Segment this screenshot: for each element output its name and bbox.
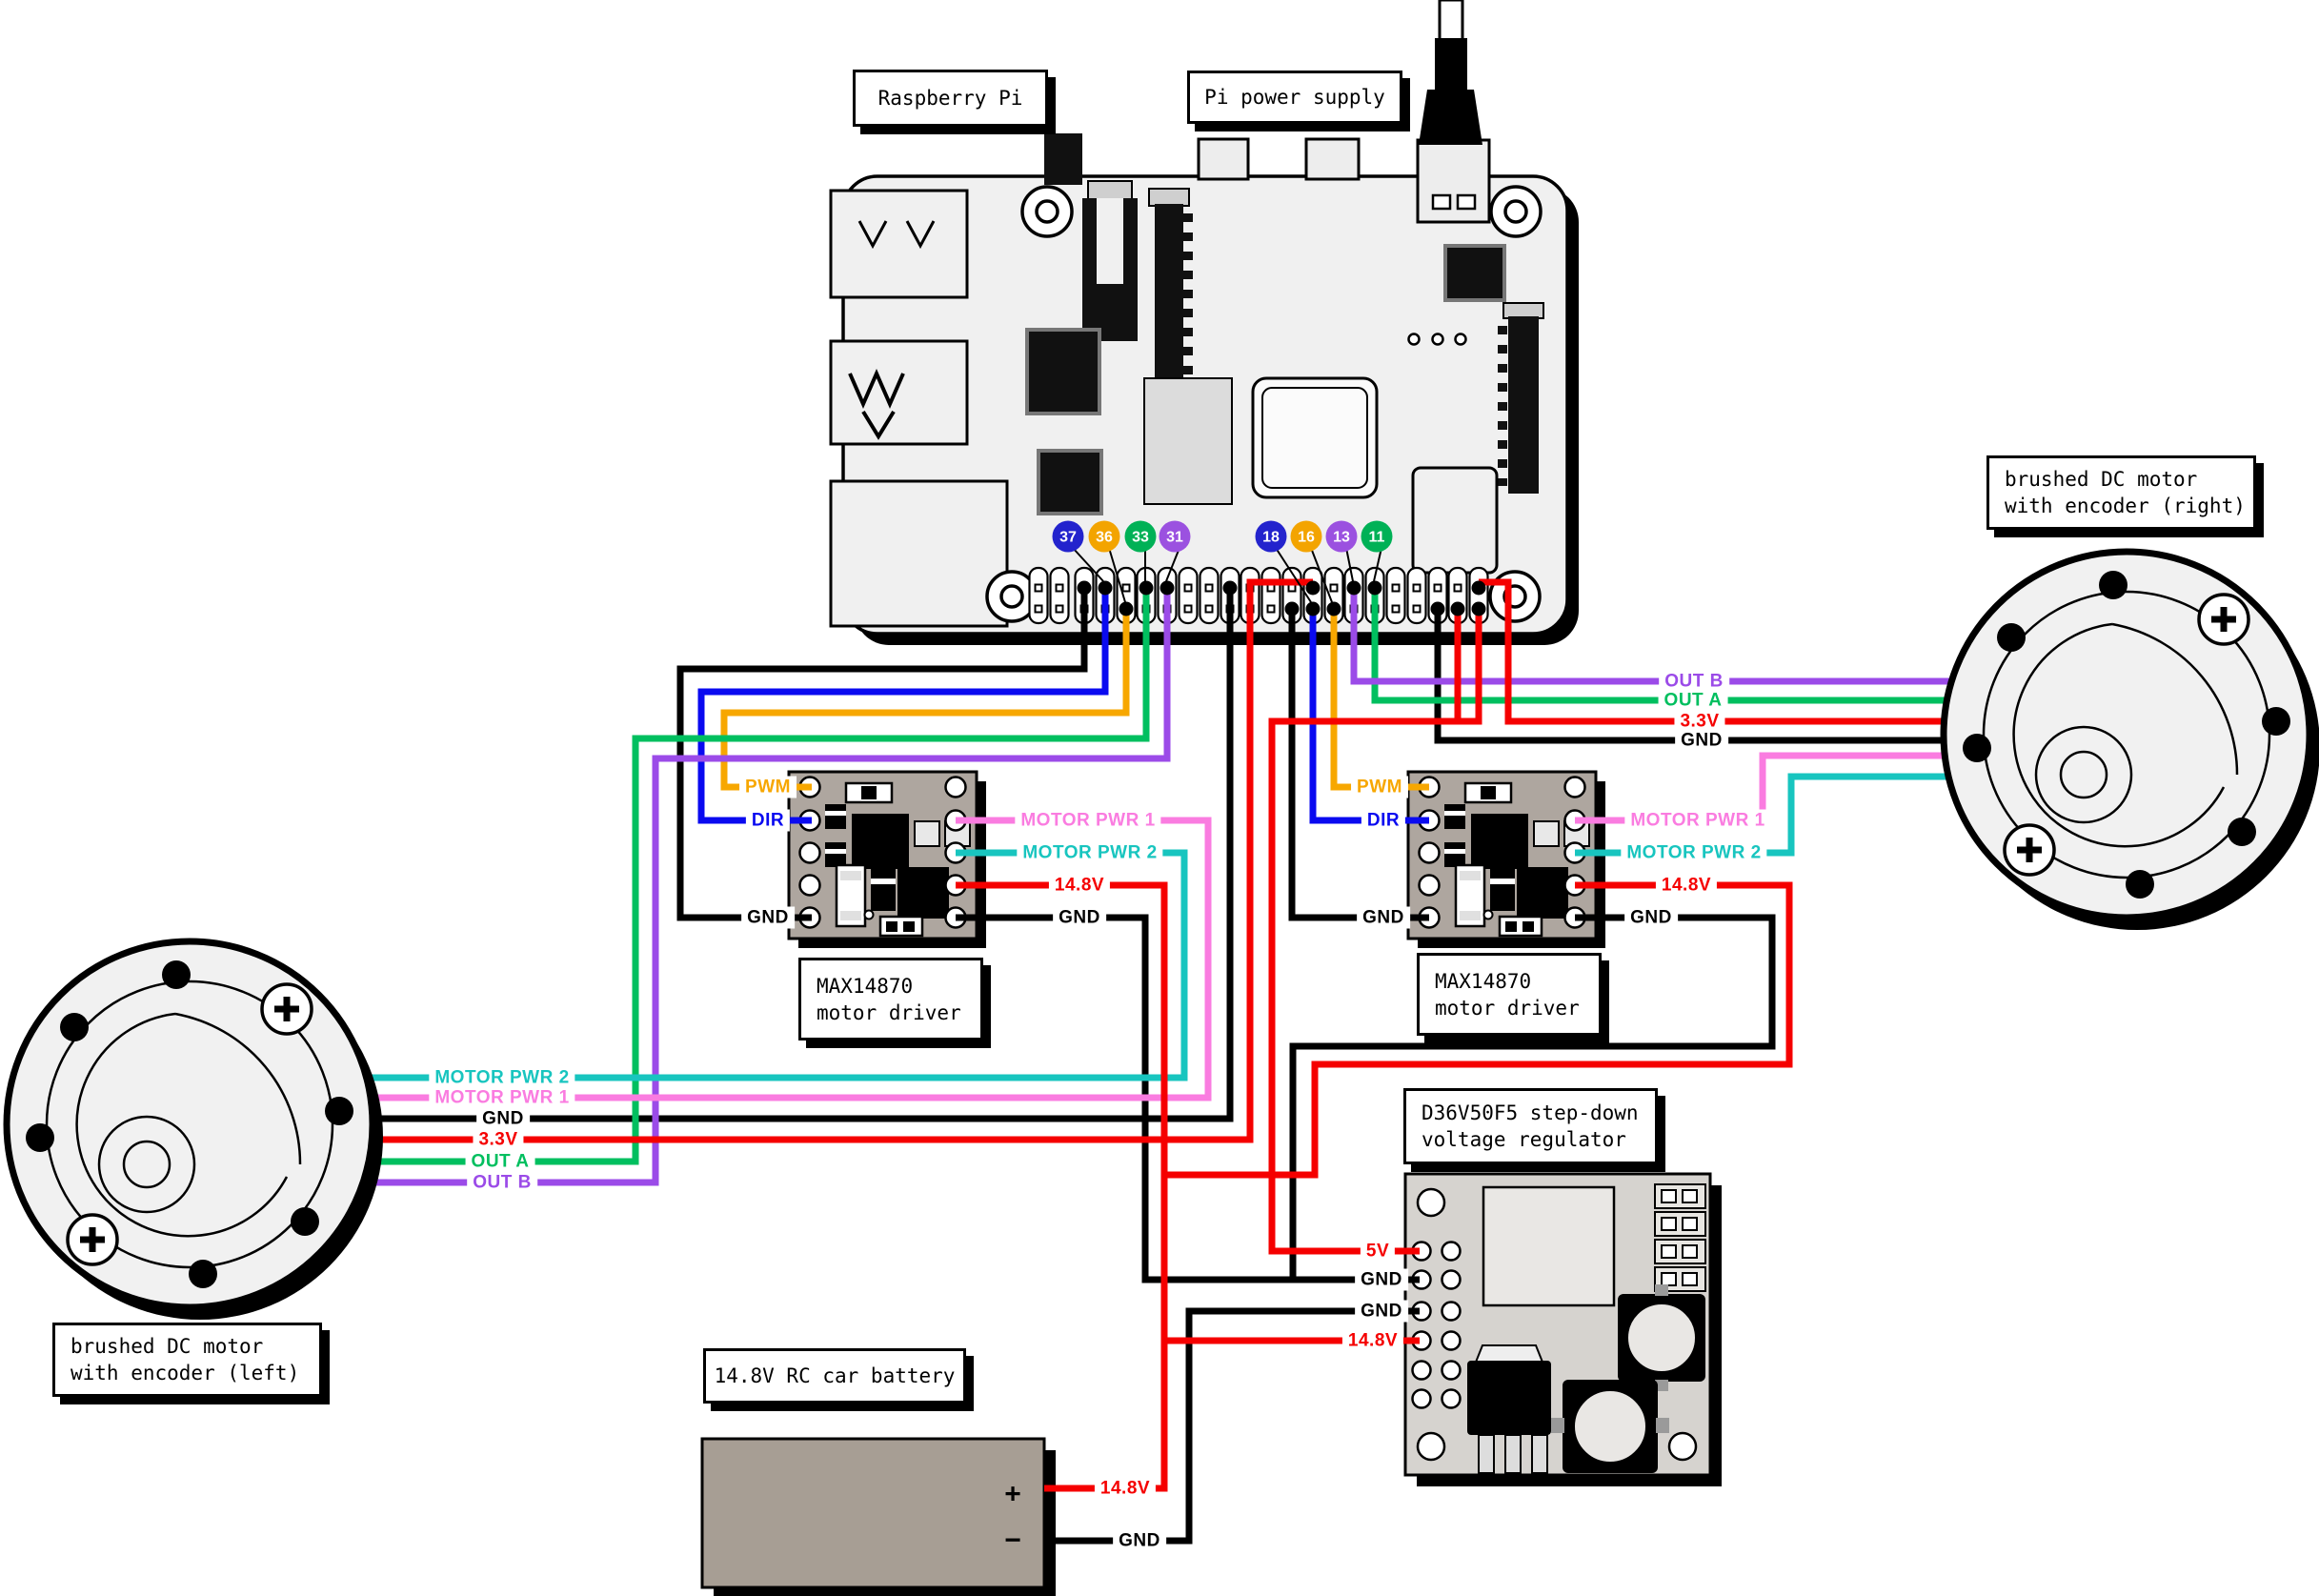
label-box-motor-left: brushed DC motorwith encoder (left) xyxy=(52,1323,322,1397)
regulator-pin xyxy=(1442,1242,1461,1261)
wiring-diagram: + − 3736333118161311 PWMDIRGNDMOTOR PWR … xyxy=(0,0,2319,1596)
driver-pin xyxy=(1420,876,1440,896)
gpio-pin-hole xyxy=(1393,606,1400,613)
gpio-pin-dot xyxy=(1431,602,1445,616)
gpio-pin-dot xyxy=(1306,602,1321,616)
left-dc-motor xyxy=(7,941,383,1320)
wire-14v8-battery-to-left-driver xyxy=(956,885,1164,1488)
chip xyxy=(1027,330,1099,414)
wire-label-14-8v: 14.8V xyxy=(1342,1330,1403,1352)
gpio-pin-hole xyxy=(1289,585,1296,592)
usb-port xyxy=(831,481,1007,626)
gpio-pin-hole xyxy=(1414,585,1421,592)
gpio-pin-hole xyxy=(1393,585,1400,592)
wire-label-motor-pwr-1: MOTOR PWR 1 xyxy=(429,1087,575,1109)
battery-plus-terminal: + xyxy=(1005,1477,1021,1508)
gpio-pin-pill xyxy=(1387,568,1405,623)
wire-label-gnd: GND xyxy=(476,1108,530,1130)
capacitor xyxy=(1551,1380,1669,1473)
wire-label-out-b: OUT B xyxy=(467,1172,537,1194)
wire-label-14-8v: 14.8V xyxy=(1095,1478,1156,1500)
driver-pin xyxy=(800,876,820,896)
gpio-pin-pill xyxy=(1180,568,1198,623)
regulator-ic xyxy=(1483,1187,1614,1305)
driver-pin xyxy=(946,778,966,798)
label-box-line: MAX14870 xyxy=(817,973,965,1000)
label-box-line: brushed DC motor xyxy=(71,1333,304,1360)
gpio-pin-dot xyxy=(1223,581,1238,596)
component xyxy=(1144,378,1232,504)
gpio-pin-hole xyxy=(1268,585,1275,592)
pin-badge-number: 37 xyxy=(1059,530,1077,546)
gpio-pin-hole xyxy=(1057,606,1063,613)
wire-label-pwm: PWM xyxy=(1351,777,1408,798)
metal-shield xyxy=(1253,378,1377,497)
transistor xyxy=(1467,1345,1551,1473)
regulator-pin xyxy=(1413,1362,1431,1380)
wire-label-gnd: GND xyxy=(741,907,795,929)
battery-minus-terminal: − xyxy=(1005,1524,1021,1555)
wire-label-out-a: OUT A xyxy=(466,1151,535,1173)
camera-connector xyxy=(1502,303,1543,494)
regulator-pin xyxy=(1413,1390,1431,1408)
component xyxy=(1413,468,1497,573)
label-box-line: MAX14870 xyxy=(1435,968,1583,995)
label-box-line: motor driver xyxy=(817,1000,965,1026)
label-box-line: brushed DC motor xyxy=(2005,466,2238,493)
gpio-pin-hole xyxy=(1206,585,1213,592)
driver-pin xyxy=(800,843,820,863)
gpio-pin-dot xyxy=(1472,581,1486,596)
gpio-pin-dot xyxy=(1306,581,1321,596)
gpio-pin-hole xyxy=(1036,606,1042,613)
wire-label-motor-pwr-1: MOTOR PWR 1 xyxy=(1015,810,1160,832)
gpio-pin-hole xyxy=(1268,606,1275,613)
label-box-line: Pi power supply xyxy=(1204,84,1385,111)
label-box-driver-left: MAX14870motor driver xyxy=(798,958,983,1040)
chip xyxy=(1445,246,1504,300)
pin-badge-number: 31 xyxy=(1166,530,1183,546)
pin-badge-number: 33 xyxy=(1132,530,1149,546)
capacitor xyxy=(1618,1284,1705,1391)
pin-badge-number: 13 xyxy=(1333,530,1350,546)
label-box-regulator: D36V50F5 step-downvoltage regulator xyxy=(1403,1088,1658,1164)
gpio-pin-hole xyxy=(1414,606,1421,613)
voltage-regulator-board xyxy=(1405,1174,1722,1486)
regulator-pin xyxy=(1442,1332,1461,1350)
wire-label-gnd: GND xyxy=(1355,1301,1408,1323)
gpio-pin-dot xyxy=(1347,581,1361,596)
wire-label-pwm: PWM xyxy=(739,777,797,798)
gpio-pin-hole xyxy=(1331,585,1338,592)
regulator-pin xyxy=(1442,1390,1461,1408)
label-box-line: motor driver xyxy=(1435,995,1583,1021)
diagram-canvas: + − 3736333118161311 xyxy=(0,0,2319,1596)
gpio-pin-dot xyxy=(1078,581,1092,596)
pin-badge-number: 36 xyxy=(1096,530,1113,546)
chip xyxy=(1039,451,1101,514)
gpio-pin-hole xyxy=(1123,585,1130,592)
battery-body: + − xyxy=(702,1439,1056,1596)
gpio-pin-dot xyxy=(1160,581,1175,596)
label-box-line: 14.8V RC car battery xyxy=(715,1363,956,1389)
gpio-pin-dot xyxy=(1285,602,1300,616)
wire-label-gnd: GND xyxy=(1113,1530,1166,1552)
regulator-pin xyxy=(1442,1271,1461,1289)
gpio-pin-hole xyxy=(1435,585,1442,592)
display-connector xyxy=(1082,181,1138,341)
wire-label-gnd: GND xyxy=(1675,730,1728,752)
wire-label-gnd: GND xyxy=(1624,907,1678,929)
gpio-pin-dot xyxy=(1099,581,1113,596)
wire-label-gnd: GND xyxy=(1355,1269,1408,1291)
pin-badge-number: 16 xyxy=(1298,530,1315,546)
gpio-pin-pill xyxy=(1051,568,1069,623)
wire-label-out-a: OUT A xyxy=(1659,690,1728,712)
pin-badge-number: 11 xyxy=(1369,530,1385,546)
gpio-pin-pill xyxy=(1200,568,1219,623)
gpio-pin-pill xyxy=(1262,568,1280,623)
wire-label-14-8v: 14.8V xyxy=(1049,875,1110,897)
raspberry-pi-board xyxy=(831,133,1579,645)
regulator-pin xyxy=(1442,1303,1461,1321)
label-box-line: with encoder (left) xyxy=(71,1360,304,1386)
label-box-raspberry-pi: Raspberry Pi xyxy=(853,70,1048,127)
gpio-pin-dot xyxy=(1451,602,1465,616)
gpio-pin-hole xyxy=(1455,585,1462,592)
gpio-pin-dot xyxy=(1472,602,1486,616)
wire-label-14-8v: 14.8V xyxy=(1656,875,1717,897)
gpio-pin-dot xyxy=(1327,602,1341,616)
hdmi-port xyxy=(1199,139,1248,179)
wire-label-motor-pwr-2: MOTOR PWR 2 xyxy=(1621,842,1766,864)
gpio-pin-hole xyxy=(1036,585,1042,592)
wire-label-motor-pwr-2: MOTOR PWR 2 xyxy=(429,1067,575,1089)
driver-pin xyxy=(1565,778,1585,798)
label-box-driver-right: MAX14870motor driver xyxy=(1417,953,1602,1036)
wire-label-motor-pwr-1: MOTOR PWR 1 xyxy=(1624,810,1770,832)
label-box-pi-power-supply: Pi power supply xyxy=(1187,71,1402,124)
wire-label-gnd: GND xyxy=(1053,907,1106,929)
wire-label-3-3v: 3.3V xyxy=(473,1129,523,1151)
label-box-line: D36V50F5 step-down xyxy=(1422,1100,1640,1126)
driver-pin xyxy=(1420,843,1440,863)
camera-port xyxy=(1044,133,1082,185)
gpio-pin-pill xyxy=(1030,568,1048,623)
usb-port xyxy=(831,341,967,444)
right-dc-motor xyxy=(1944,552,2319,930)
gpio-pin-pill xyxy=(1408,568,1426,623)
label-box-motor-right: brushed DC motorwith encoder (right) xyxy=(1986,455,2256,530)
hdmi-port xyxy=(1306,139,1359,179)
wire-label-gnd: GND xyxy=(1357,907,1410,929)
wire-label-dir: DIR xyxy=(1361,810,1405,832)
wire-label-5v: 5V xyxy=(1361,1241,1395,1263)
label-box-line: voltage regulator xyxy=(1422,1126,1640,1153)
pin-badge-number: 18 xyxy=(1262,530,1280,546)
label-box-battery: 14.8V RC car battery xyxy=(703,1348,966,1404)
gpio-pin-dot xyxy=(1139,581,1154,596)
gpio-pin-hole xyxy=(1185,606,1192,613)
label-box-line: Raspberry Pi xyxy=(878,85,1023,111)
wire-label-dir: DIR xyxy=(746,810,790,832)
wire-label-motor-pwr-2: MOTOR PWR 2 xyxy=(1017,842,1162,864)
label-box-line: with encoder (right) xyxy=(2005,493,2238,519)
usb-c-power-port xyxy=(1418,140,1489,222)
gpio-pin-dot xyxy=(1368,581,1382,596)
ethernet-port xyxy=(831,191,967,297)
gpio-pin-hole xyxy=(1206,606,1213,613)
gpio-pin-hole xyxy=(1057,585,1063,592)
power-supply-plug xyxy=(1419,0,1482,145)
regulator-pin xyxy=(1442,1362,1461,1380)
gpio-pin-hole xyxy=(1185,585,1192,592)
gpio-pin-dot xyxy=(1119,602,1134,616)
